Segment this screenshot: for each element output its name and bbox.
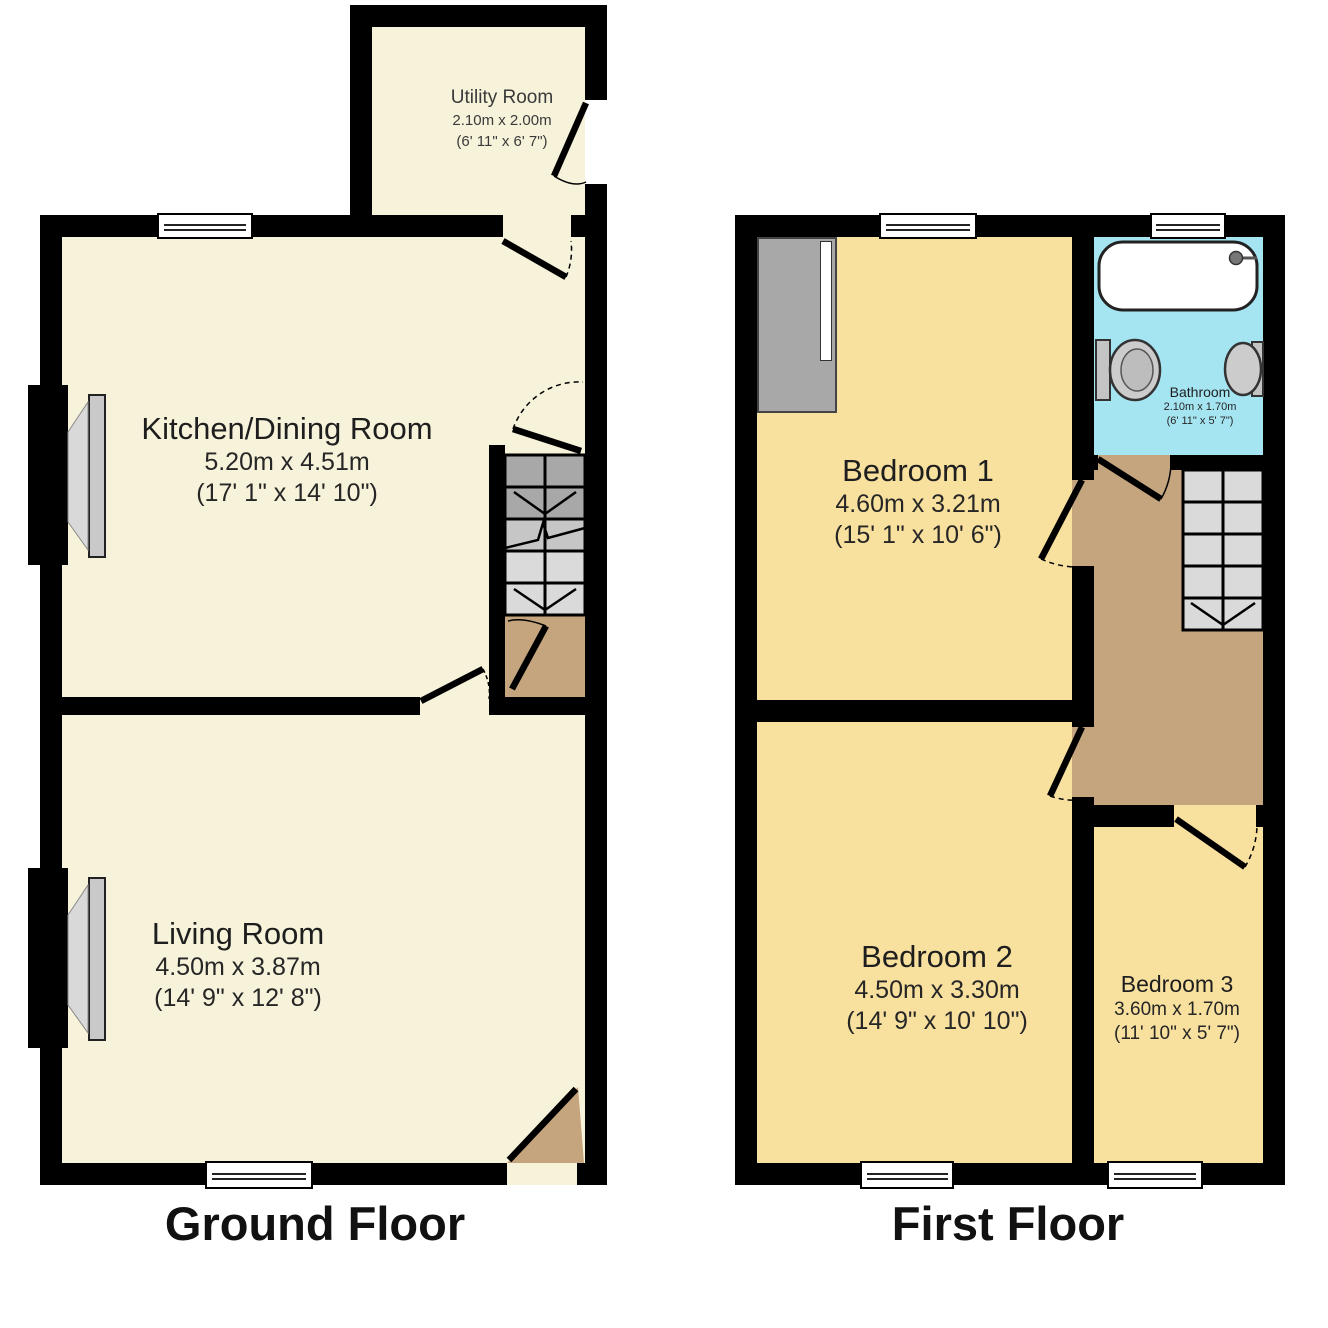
room-name: Utility Room [451,86,553,110]
door-opening [503,215,571,237]
room-dims-imperial: (14' 9" x 10' 10") [846,1006,1028,1037]
wall [350,5,372,237]
room-label-kitchen: Kitchen/Dining Room 5.20m x 4.51m (17' 1… [141,410,432,509]
room-name: Living Room [152,915,324,952]
door-opening [1072,480,1094,566]
room-label-living: Living Room 4.50m x 3.87m (14' 9" x 12' … [152,915,324,1014]
wardrobe [757,237,837,413]
window [860,1161,954,1189]
wall [350,5,607,27]
wall-stairs-ground [489,445,505,697]
bay-window [28,385,68,565]
room-name: Kitchen/Dining Room [141,410,432,447]
room-label-bedroom2: Bedroom 2 4.50m x 3.30m (14' 9" x 10' 10… [846,938,1028,1037]
room-dims-metric: 5.20m x 4.51m [141,447,432,478]
room-dims-metric: 4.60m x 3.21m [834,489,1002,520]
wall-bedroom1-bedroom2 [757,700,1094,722]
room-dims-imperial: (6' 11" x 6' 7") [451,131,553,152]
door-opening [1174,805,1256,827]
room-name: Bedroom 2 [846,938,1028,975]
window-pane [1156,224,1221,226]
window [1107,1161,1203,1189]
window-pane [886,224,971,226]
room-label-bedroom3: Bedroom 3 3.60m x 1.70m (11' 10" x 5' 7"… [1114,971,1240,1046]
wall [1263,215,1285,1185]
bay-window [28,868,68,1048]
ground-floor-title: Ground Floor [165,1196,465,1251]
hallway-ground [505,615,585,697]
room-dims-imperial: (14' 9" x 12' 8") [152,983,324,1014]
landing-first [1094,455,1263,805]
bay-window-pane [88,877,106,1041]
window-pane [1156,229,1221,231]
room-dims-imperial: (17' 1" x 14' 10") [141,478,432,509]
first-floor-title: First Floor [892,1196,1124,1251]
floor-plan: Utility Room 2.10m x 2.00m (6' 11" x 6' … [0,0,1328,1328]
room-dims-imperial: (11' 10" x 5' 7") [1114,1022,1240,1046]
window-pane [164,229,247,231]
bay-window-pane [88,394,106,558]
room-dims-metric: 4.50m x 3.30m [846,975,1028,1006]
window [1150,213,1226,239]
room-dims-metric: 4.50m x 3.87m [152,952,324,983]
door-opening [421,697,489,715]
room-dims-imperial: (15' 1" x 10' 6") [834,520,1002,551]
window [205,1161,313,1189]
window-pane [1114,1178,1197,1180]
window [157,213,253,239]
room-label-bathroom: Bathroom 2.10m x 1.70m (6' 11" x 5' 7") [1164,384,1237,428]
room-dims-metric: 2.10m x 1.70m [1164,400,1237,414]
window-pane [886,229,971,231]
wardrobe-door [820,241,832,361]
window-pane [867,1178,948,1180]
window-pane [212,1173,306,1175]
door-opening [507,1163,577,1185]
room-name: Bedroom 3 [1114,971,1240,998]
window-pane [164,224,247,226]
room-label-bedroom1: Bedroom 1 4.60m x 3.21m (15' 1" x 10' 6"… [834,452,1002,551]
room-label-utility: Utility Room 2.10m x 2.00m (6' 11" x 6' … [451,86,553,152]
room-dims-imperial: (6' 11" x 5' 7") [1164,414,1237,428]
door-opening [1098,455,1170,470]
door-opening [585,100,607,184]
wall [735,215,757,1185]
wall [585,237,607,1185]
window-pane [867,1173,948,1175]
door-opening [1072,727,1094,797]
window [879,213,977,239]
wall-kitchen-living-divider [489,697,585,715]
wall-kitchen-living-divider [62,697,420,715]
room-name: Bathroom [1164,384,1237,400]
room-dims-metric: 3.60m x 1.70m [1114,998,1240,1022]
room-dims-metric: 2.10m x 2.00m [451,110,553,131]
room-name: Bedroom 1 [834,452,1002,489]
window-pane [212,1178,306,1180]
window-pane [1114,1173,1197,1175]
